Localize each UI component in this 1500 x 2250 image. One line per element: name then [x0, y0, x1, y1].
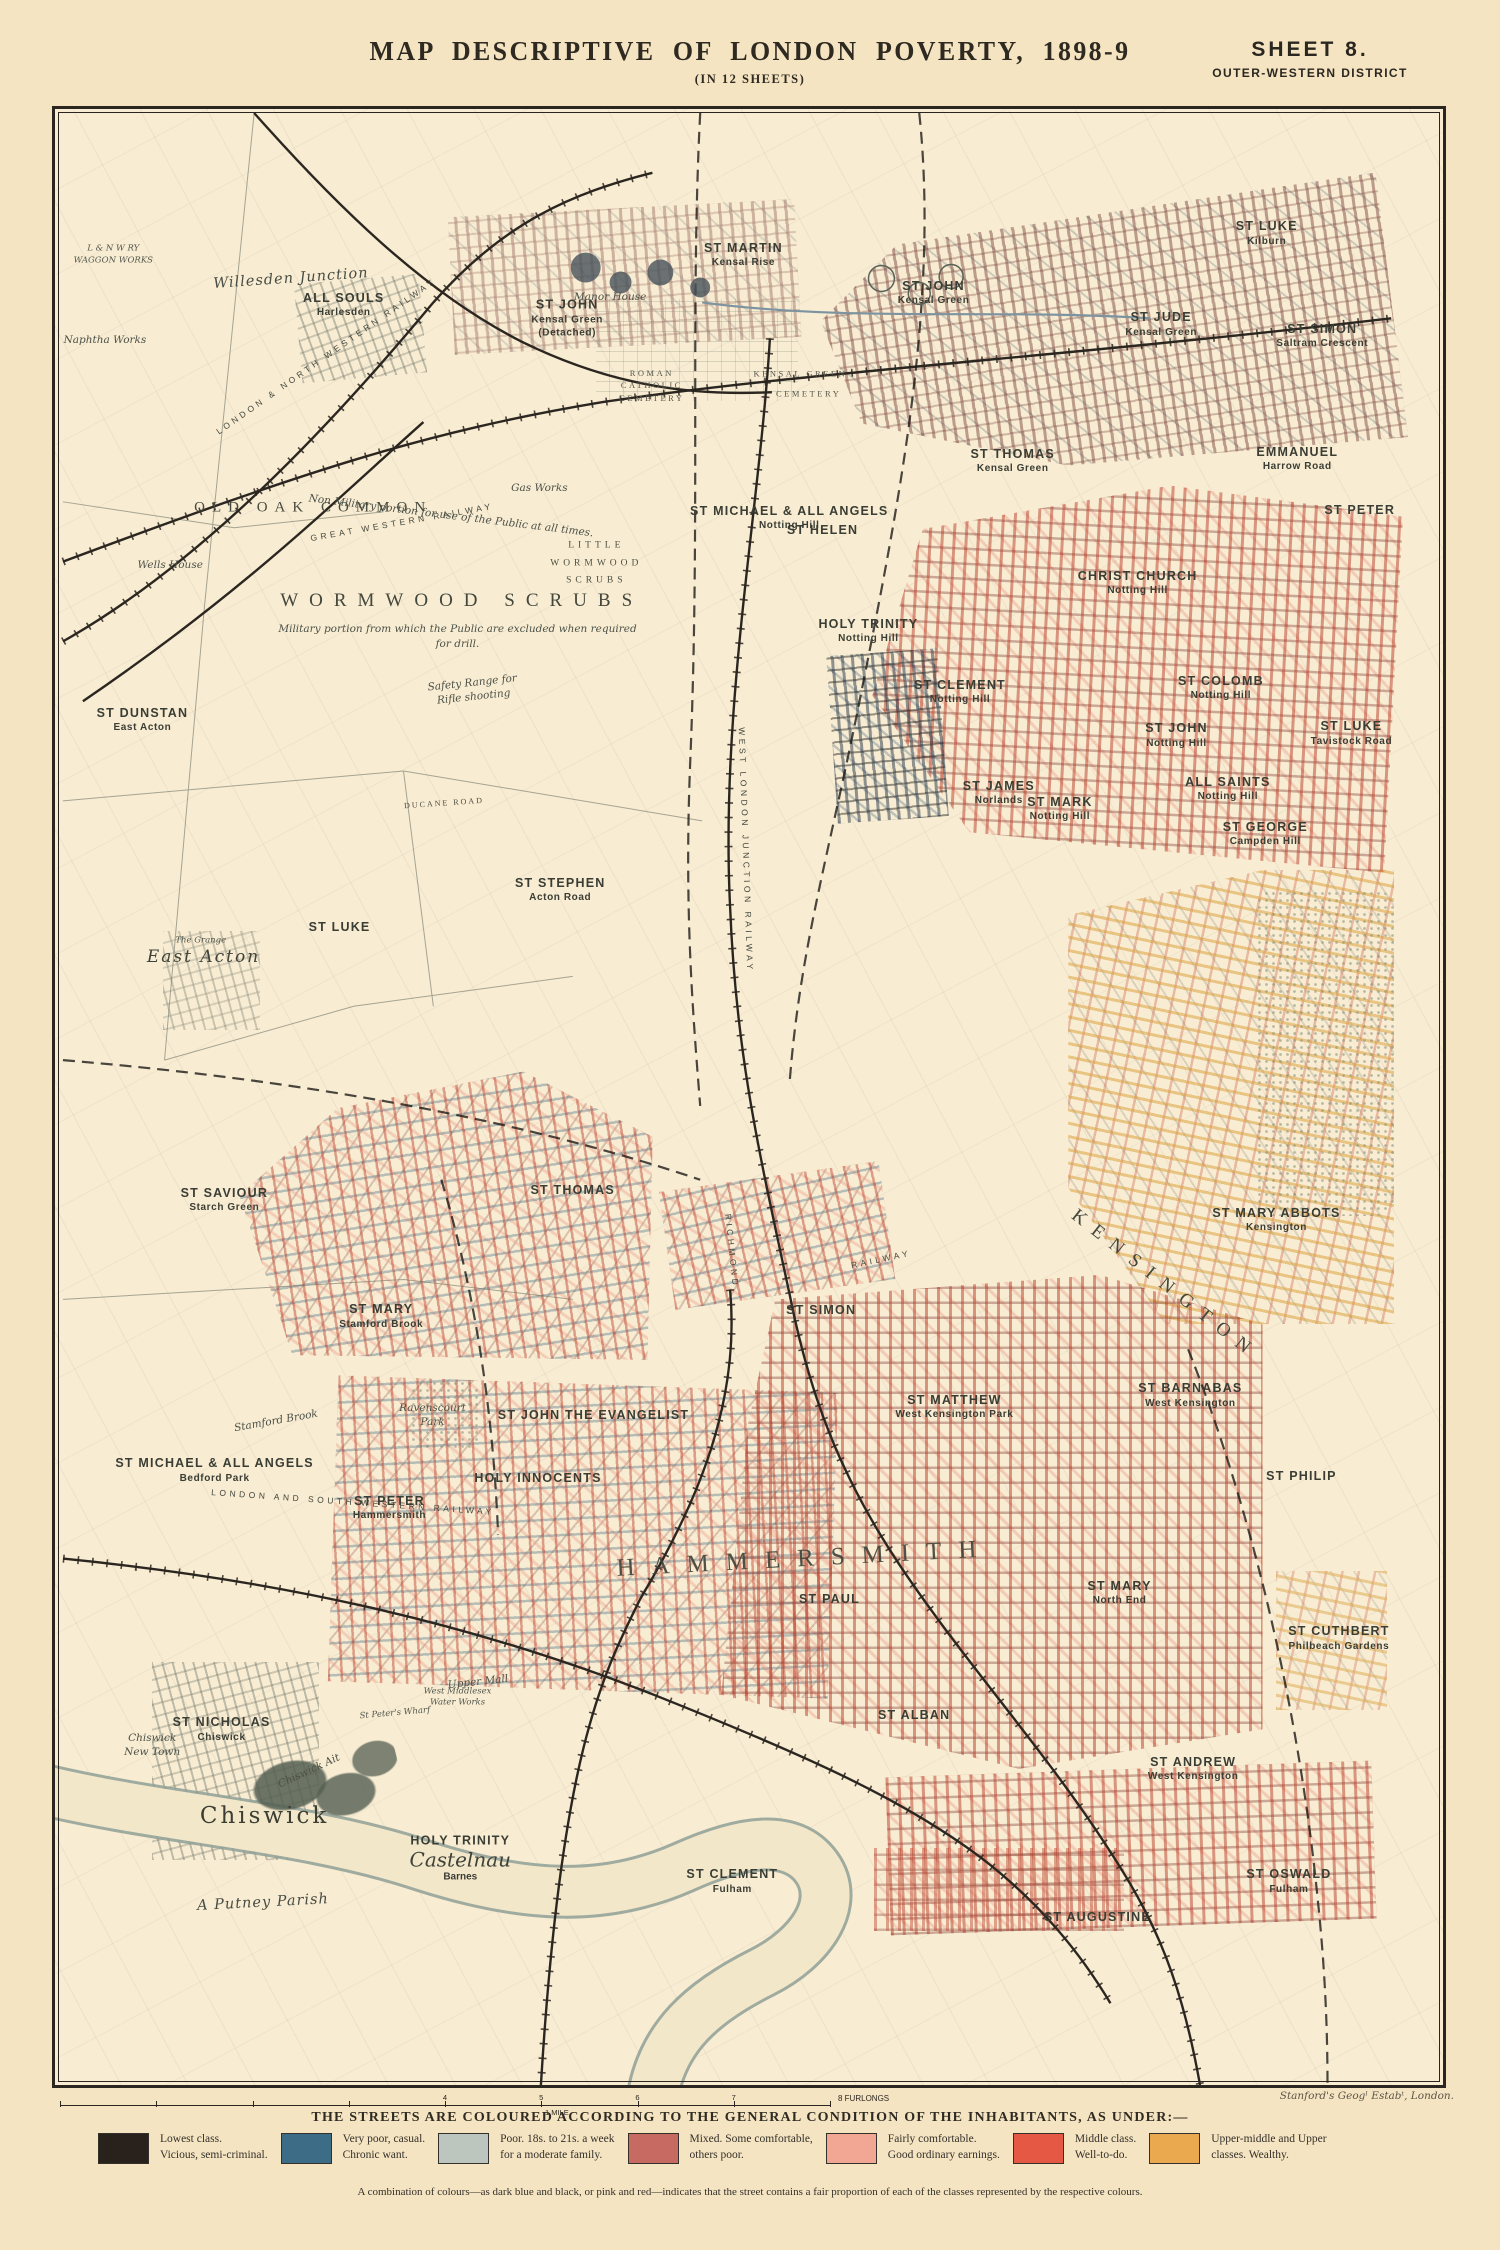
legend-label: Fairly comfortable.Good ordinary earning…: [888, 2131, 1000, 2163]
legend-heading: THE STREETS ARE COLOURED ACCORDING TO TH…: [0, 2110, 1500, 2126]
map-label: ST CLEMENTNotting Hill: [914, 677, 1006, 707]
map-label: CHRIST CHURCHNotting Hill: [1078, 568, 1198, 598]
legend-label: Upper-middle and Upperclasses. Wealthy.: [1211, 2131, 1326, 2163]
legend-swatch: [1149, 2133, 1200, 2164]
map-label: WORMWOOD SCRUBS: [280, 590, 643, 612]
map-label: Gas Works: [511, 481, 568, 495]
map-label: KENSAL GREEN: [754, 367, 848, 380]
map-label: ST SIMONSaltram Crescent: [1276, 321, 1368, 351]
map-label: ALL SOULSHarlesden: [303, 290, 384, 320]
legend-item: Lowest class.Vicious, semi-criminal.: [98, 2131, 268, 2164]
map-label: ChiswickNew Town: [124, 1731, 180, 1759]
map-label: ST ANDREWWest Kensington: [1148, 1754, 1238, 1784]
map-label: Wells House: [137, 558, 202, 572]
map-label: ST OSWALDFulham: [1246, 1867, 1331, 1897]
map-label: ST JAMESNorlands: [963, 778, 1035, 808]
map-label: ST LUKETavistock Road: [1311, 719, 1393, 749]
map-label: HOLY INNOCENTS: [474, 1470, 601, 1486]
map-label: ST SIMON: [786, 1302, 856, 1318]
scale-bar: 4567: [60, 2097, 830, 2109]
map-label: ROMANCATHOLICCEMETERY: [619, 367, 684, 405]
map-label: Manor House: [574, 290, 646, 304]
publisher-imprint: Stanford's Geogˡ Estabᵗ, London.: [1280, 2090, 1454, 2102]
map-label: ST CLEMENTFulham: [686, 1867, 778, 1897]
scale-mile-label: 1 MILE: [545, 2108, 569, 2117]
booth-poverty-map-sheet: { "header": { "title": "MAP DESCRIPTIVE …: [0, 0, 1500, 2250]
map-label: ST NICHOLASChiswick: [173, 1714, 271, 1744]
map-label: LITTLEWORMWOODSCRUBS: [550, 538, 642, 589]
map-canvas: ST MARTINKensal RiseALL SOULSHarlesdenST…: [52, 106, 1446, 2088]
legend-item: Very poor, casual.Chronic want.: [281, 2131, 426, 2164]
scale-tick: [253, 2101, 254, 2107]
scale-tick: [349, 2101, 350, 2107]
map-label: ST PAUL: [799, 1591, 860, 1607]
map-label: ST SAVIOURStarch Green: [181, 1185, 268, 1215]
scale-tick: [156, 2101, 157, 2107]
scale-tick-number: 5: [539, 2093, 543, 2102]
map-label: ST STEPHENActon Road: [515, 875, 606, 905]
district-name: OUTER-WESTERN DISTRICT: [1160, 66, 1460, 80]
map-label: ST MICHAEL & ALL ANGELSBedford Park: [115, 1456, 313, 1486]
legend-swatch: [826, 2133, 877, 2164]
map-label: ALL SAINTSNotting Hill: [1185, 774, 1270, 804]
legend-label: Poor. 18s. to 21s. a weekfor a moderate …: [500, 2131, 614, 2163]
legend-item: Mixed. Some comfortable,others poor.: [628, 2131, 813, 2164]
map-label: ST MARKNotting Hill: [1027, 794, 1092, 824]
legend-item: Middle class.Well-to-do.: [1013, 2131, 1136, 2164]
sheet-number: SHEET 8.: [1160, 38, 1460, 62]
legend-label: Very poor, casual.Chronic want.: [343, 2131, 426, 2163]
scale-tick-number: 4: [443, 2093, 447, 2102]
legend-swatch: [281, 2133, 332, 2164]
map-label: The Grange: [175, 935, 226, 946]
legend-swatch: [628, 2133, 679, 2164]
legend-item: Upper-middle and Upperclasses. Wealthy.: [1149, 2131, 1326, 2164]
legend-swatch: [1013, 2133, 1064, 2164]
map-label: CEMETERY: [776, 387, 841, 400]
map-label: ST THOMAS: [531, 1182, 615, 1198]
map-label: ST LUKE: [309, 919, 371, 935]
map-label: ST JUDEKensal Green: [1125, 310, 1197, 340]
map-label: HOLY TRINITYNotting Hill: [818, 616, 918, 646]
map-label: for drill.: [436, 637, 480, 651]
map-label: EMMANUELHarrow Road: [1256, 444, 1338, 474]
map-label: ST MATTHEWWest Kensington Park: [895, 1392, 1013, 1422]
legend-note: A combination of colours—as dark blue an…: [0, 2186, 1500, 2198]
map-label: ST GEORGECampden Hill: [1223, 819, 1308, 849]
map-label: HOLY TRINITYCastelnauBarnes: [410, 1832, 511, 1883]
legend-swatch: [98, 2133, 149, 2164]
map-label: ST PETER: [1324, 502, 1395, 518]
map-label: ST BARNABASWest Kensington: [1138, 1381, 1242, 1411]
scale-tick: [60, 2101, 61, 2107]
map-label: Naphtha Works: [64, 333, 147, 347]
map-label: ST JOHNKensal Green: [898, 278, 970, 308]
map-label: L & N W RYWAGGON WORKS: [74, 244, 153, 267]
map-label: Military portion from which the Public a…: [278, 622, 636, 636]
legend-item: Fairly comfortable.Good ordinary earning…: [826, 2131, 1000, 2164]
map-label: ST CUTHBERTPhilbeach Gardens: [1288, 1624, 1389, 1654]
map-label: ST MARYNorth End: [1088, 1578, 1152, 1608]
map-label: ST LUKEKilburn: [1236, 219, 1298, 249]
map-label: ST THOMASKensal Green: [971, 446, 1055, 476]
map-label: ST JOHN THE EVANGELIST: [498, 1407, 689, 1423]
legend-item: Poor. 18s. to 21s. a weekfor a moderate …: [438, 2131, 614, 2164]
scale-furlongs-label: 8 FURLONGS: [838, 2094, 889, 2103]
map-label: ST COLOMBNotting Hill: [1178, 673, 1264, 703]
map-label: ST DUNSTANEast Acton: [97, 705, 189, 735]
map-label: RavenscourtPark: [399, 1401, 466, 1429]
scale-tick-number: 6: [635, 2093, 639, 2102]
map-label: ST PHILIP: [1266, 1468, 1337, 1484]
map-label: ST MARTINKensal Rise: [704, 240, 783, 270]
map-label: Chiswick: [200, 1803, 329, 1829]
map-label: ST ALBAN: [878, 1707, 950, 1723]
map-label: ST HELEN: [787, 522, 858, 538]
legend-label: Lowest class.Vicious, semi-criminal.: [160, 2131, 268, 2163]
legend: Lowest class.Vicious, semi-criminal.Very…: [98, 2131, 1474, 2164]
legend-label: Middle class.Well-to-do.: [1075, 2131, 1136, 2163]
legend-swatch: [438, 2133, 489, 2164]
map-label: ST MARYStamford Brook: [339, 1301, 423, 1331]
legend-label: Mixed. Some comfortable,others poor.: [690, 2131, 813, 2163]
scale-tick-number: 7: [732, 2093, 736, 2102]
map-label: ST JOHNNotting Hill: [1145, 721, 1208, 751]
scale-tick: [830, 2101, 831, 2107]
map-label: ST AUGUSTINE: [1044, 1909, 1151, 1925]
map-label: West MiddlesexWater Works: [424, 1686, 492, 1709]
map-label: East Acton: [147, 947, 260, 967]
map-label: ST MARY ABBOTSKensington: [1212, 1205, 1340, 1235]
